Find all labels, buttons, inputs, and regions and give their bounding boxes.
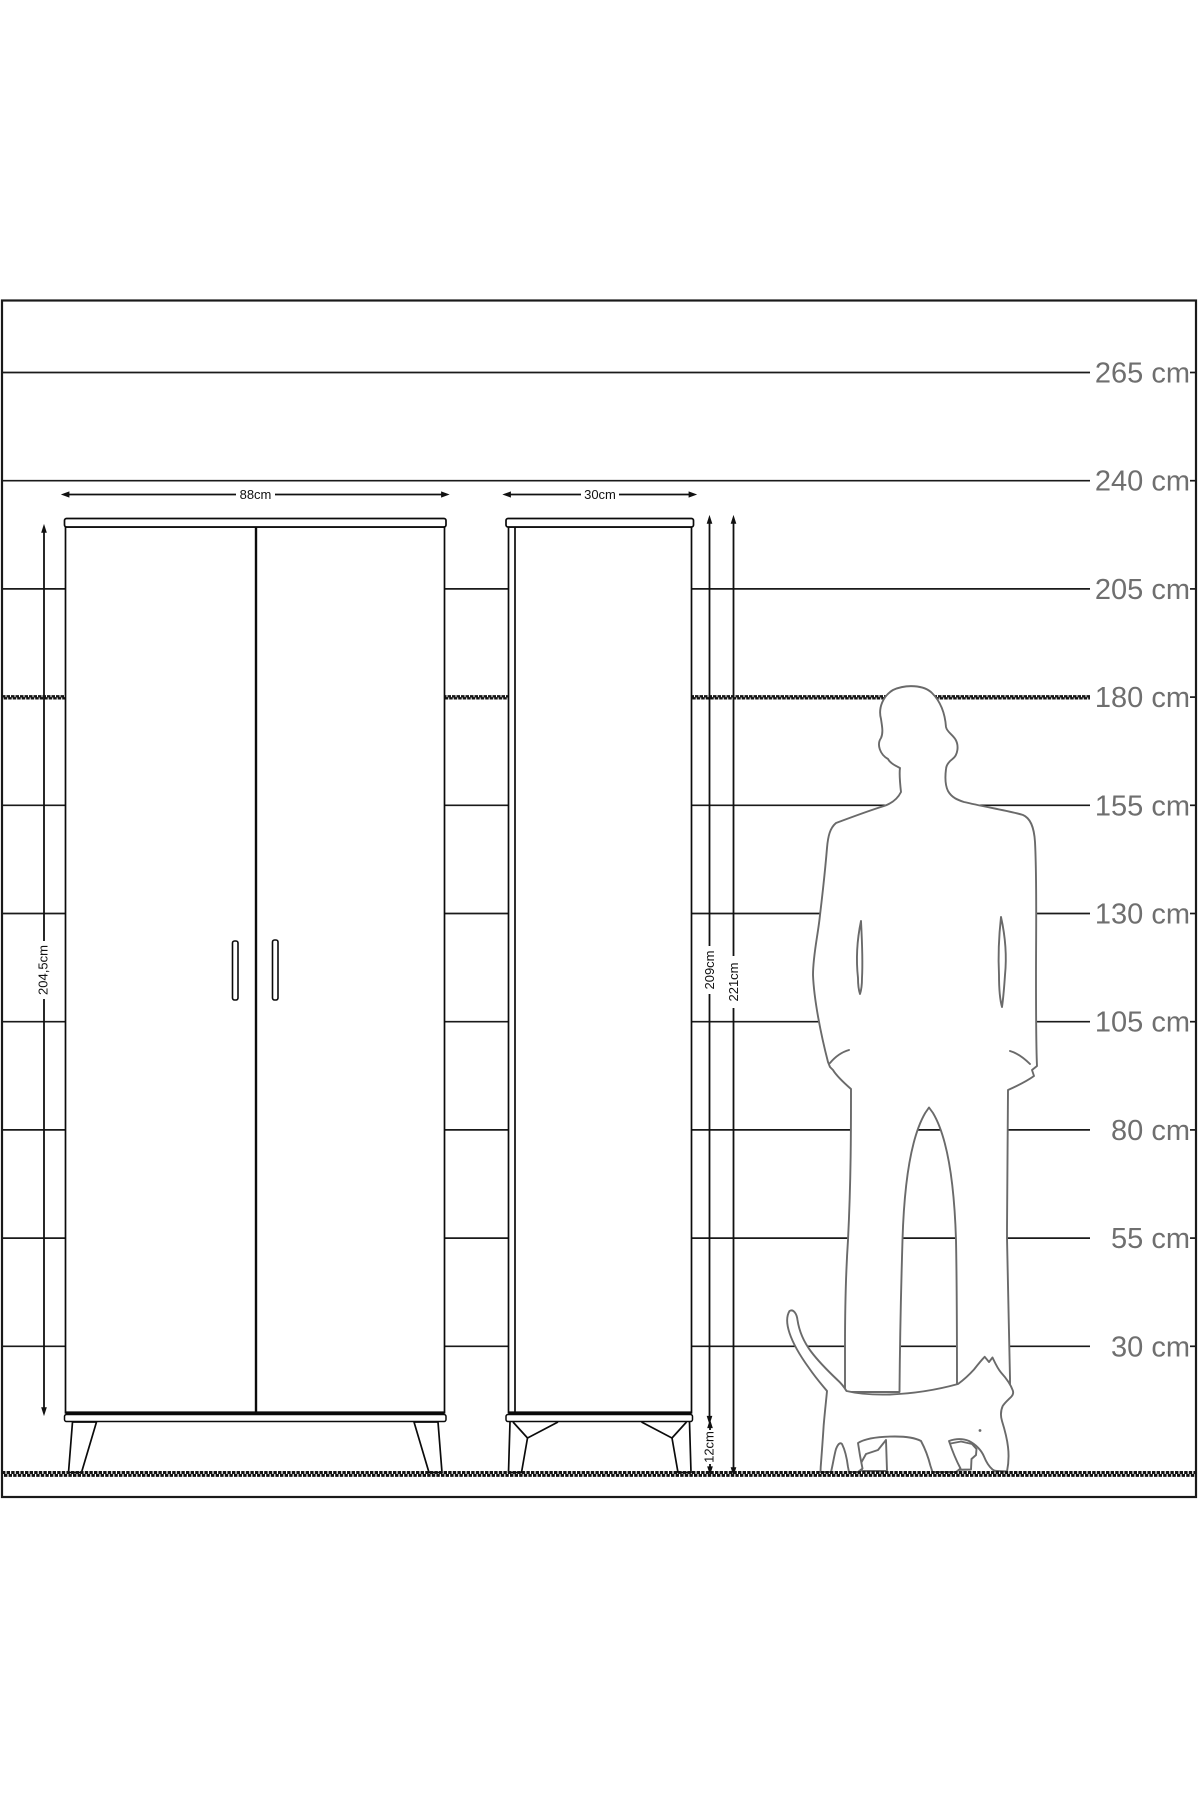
svg-text:240 cm: 240 cm bbox=[1095, 466, 1190, 498]
svg-text:30cm: 30cm bbox=[584, 487, 616, 502]
svg-text:55 cm: 55 cm bbox=[1111, 1223, 1190, 1255]
svg-text:130 cm: 130 cm bbox=[1095, 899, 1190, 931]
svg-text:221cm: 221cm bbox=[726, 962, 741, 1001]
svg-text:205 cm: 205 cm bbox=[1095, 574, 1190, 606]
svg-text:155 cm: 155 cm bbox=[1095, 790, 1190, 822]
svg-text:30 cm: 30 cm bbox=[1111, 1331, 1190, 1363]
svg-text:105 cm: 105 cm bbox=[1095, 1007, 1190, 1039]
svg-text:88cm: 88cm bbox=[240, 487, 272, 502]
svg-text:265 cm: 265 cm bbox=[1095, 358, 1190, 390]
svg-text:209cm: 209cm bbox=[702, 950, 717, 989]
svg-text:204,5cm: 204,5cm bbox=[36, 945, 51, 995]
svg-text:80 cm: 80 cm bbox=[1111, 1115, 1190, 1147]
svg-text:12cm: 12cm bbox=[702, 1431, 717, 1463]
svg-text:180 cm: 180 cm bbox=[1095, 682, 1190, 714]
